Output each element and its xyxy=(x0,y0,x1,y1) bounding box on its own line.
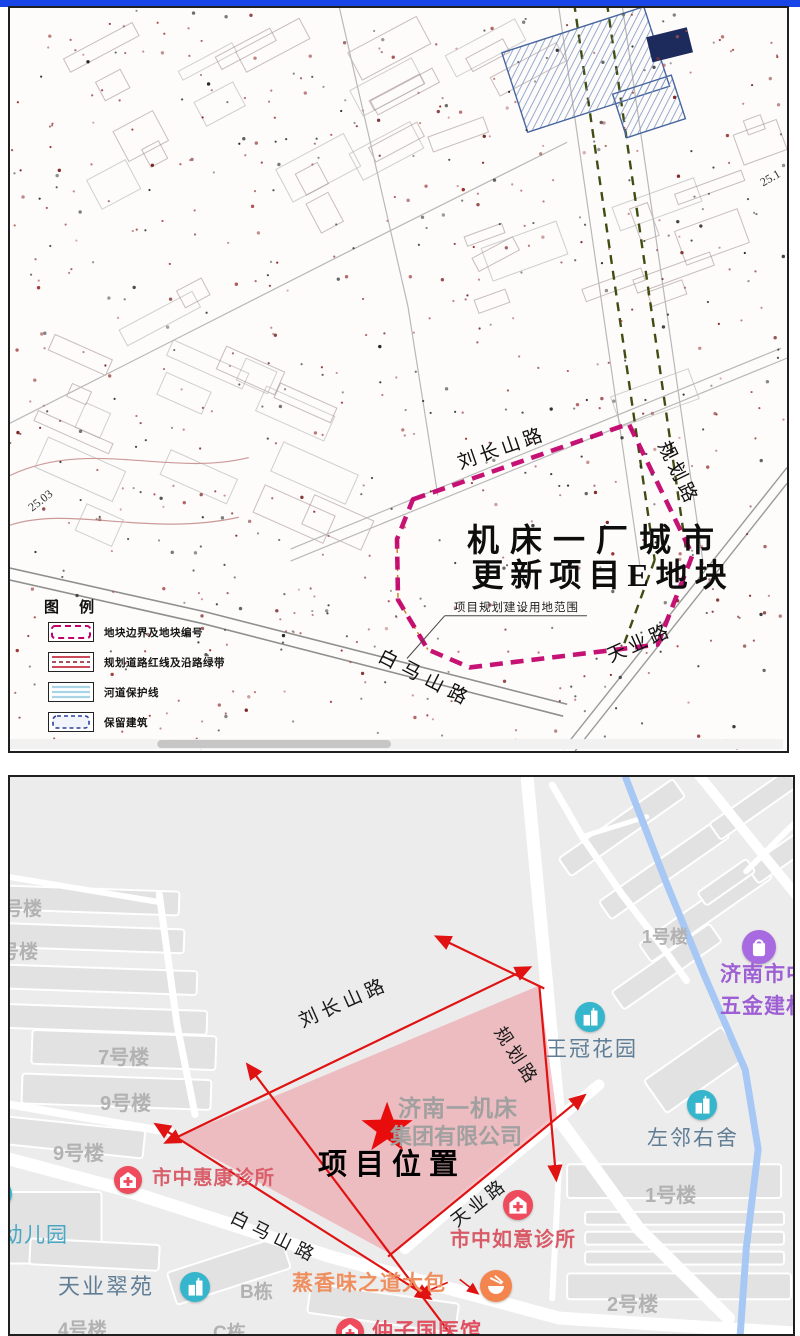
poi-label-restaurant[interactable]: 蒸香味之道大包 xyxy=(292,1272,446,1296)
road-redline-swatch xyxy=(48,652,94,672)
building-label: 9号楼 xyxy=(100,1093,151,1116)
top-map-title-line2: 更新项目E地块 xyxy=(450,557,755,594)
restaurant-poi-icon[interactable] xyxy=(480,1270,512,1302)
poi-label-ruyi-clinic[interactable]: 市中如意诊所 xyxy=(450,1229,576,1252)
poi-label-guoyiguan[interactable]: 仲子国医馆 xyxy=(372,1320,482,1336)
poi-label-zuolinyoushe[interactable]: 左邻右舍 xyxy=(647,1127,739,1151)
project-location-label: 项目位置 xyxy=(318,1149,466,1182)
parcel-accent-line xyxy=(397,539,428,649)
building-label: B栋 xyxy=(240,1282,273,1304)
legend-label: 地块边界及地块编号 xyxy=(104,625,203,640)
poi-label-huikang-clinic[interactable]: 市中惠康诊所 xyxy=(152,1167,275,1189)
poi-label-market-line2[interactable]: 五金建材 xyxy=(720,995,795,1019)
redline-spur xyxy=(437,937,544,989)
clinic-poi-icon[interactable] xyxy=(503,1190,533,1220)
building-label: 9号楼 xyxy=(53,1143,104,1166)
building-label: 号楼 xyxy=(8,942,38,964)
legend-item-river-protection: 河道保护线 xyxy=(48,682,159,702)
residential-poi-icon[interactable] xyxy=(180,1272,210,1302)
legend: 图 例 地块边界及地块编号 规划道路红线及沿路绿带 xyxy=(44,596,344,748)
clinic-poi-icon[interactable] xyxy=(114,1166,142,1194)
kindergarten-poi-icon[interactable] xyxy=(8,1180,12,1208)
building-label: C栋 xyxy=(213,1323,246,1336)
retained-building-hatched xyxy=(502,8,686,166)
legend-item-retained-building: 保留建筑 xyxy=(48,712,148,732)
legend-label: 河道保护线 xyxy=(104,685,159,700)
top-map-title-line1: 机床一厂城市 xyxy=(450,522,742,559)
retained-building-swatch xyxy=(48,712,94,732)
company-label-line2: 集团有限公司 xyxy=(390,1124,522,1149)
building-label: 2号楼 xyxy=(607,1294,658,1317)
poi-label-tianye-cuiyuan[interactable]: 天业翠苑 xyxy=(58,1274,154,1299)
planning-scan-map: 机床一厂城市 更新项目E地块 项目规划建设用地范围 刘长山路 规划路 白马山路 … xyxy=(8,6,789,753)
river-protection-swatch xyxy=(48,682,94,702)
building-label: 1号楼 xyxy=(645,1185,696,1208)
legend-label: 保留建筑 xyxy=(104,715,148,730)
residential-poi-icon[interactable] xyxy=(575,1002,605,1032)
dark-building-block xyxy=(646,27,693,62)
boundary-note: 项目规划建设用地范围 xyxy=(454,602,579,615)
residential-poi-icon[interactable] xyxy=(687,1090,717,1120)
building-label: 号楼 xyxy=(8,899,42,921)
legend-title: 图 例 xyxy=(44,596,344,617)
company-label-line1: 济南一机床 xyxy=(398,1095,518,1121)
building-label: 1号楼 xyxy=(642,927,688,948)
legend-label: 规划道路红线及沿路绿带 xyxy=(104,655,225,670)
building-label: 4号楼 xyxy=(58,1320,107,1336)
legend-item-road-redline: 规划道路红线及沿路绿带 xyxy=(48,652,225,672)
plot-boundary-swatch xyxy=(48,622,94,642)
location-web-map: 济南一机床 集团有限公司 项目位置 刘长山路 规划路 白马山路 天业路 王冠花园… xyxy=(8,775,795,1336)
poi-label-kindergarten[interactable]: 幼儿园 xyxy=(8,1224,68,1248)
market-poi-icon[interactable] xyxy=(742,930,776,964)
clinic-poi-icon[interactable] xyxy=(336,1318,364,1336)
poi-label-market-line1[interactable]: 济南市中 xyxy=(720,963,795,987)
poi-label-wangguan[interactable]: 王冠花园 xyxy=(546,1038,638,1062)
building-label: 7号楼 xyxy=(98,1047,149,1070)
legend-item-plot-boundary: 地块边界及地块编号 xyxy=(48,622,203,642)
